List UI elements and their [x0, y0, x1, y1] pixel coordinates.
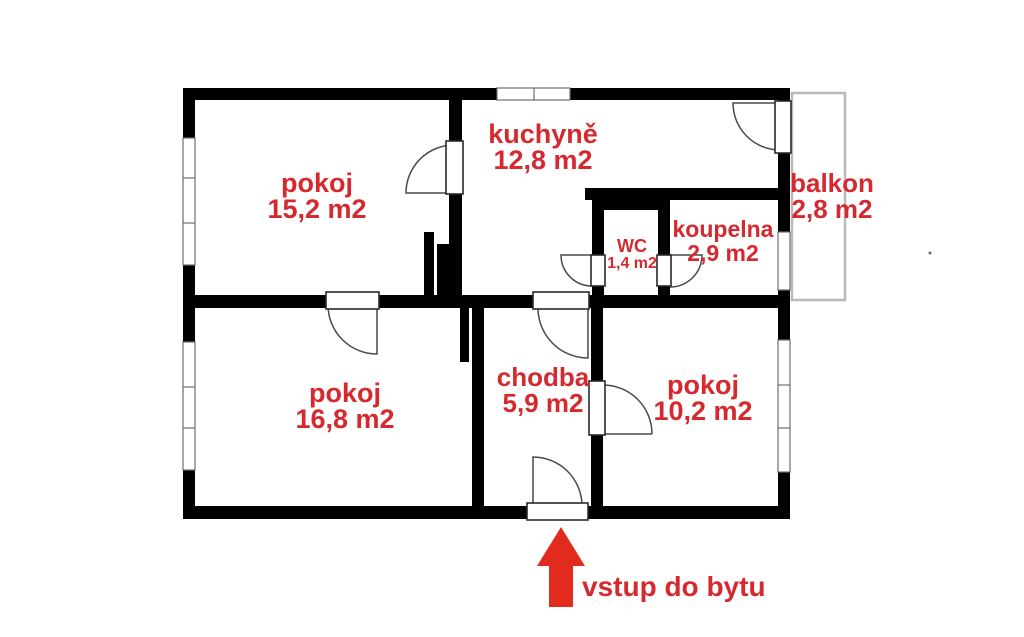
room-label-chodba: chodba 5,9 m2 [497, 364, 589, 416]
window [778, 340, 790, 472]
wall [183, 295, 326, 308]
wall [449, 100, 462, 141]
wall [472, 308, 484, 506]
door-swing-arc [603, 385, 652, 434]
door-leaf [533, 292, 589, 309]
room-label-balkon: balkon 2,8 m2 [790, 170, 874, 222]
wall [591, 308, 603, 382]
room-label-pokoj-bottom-right: pokoj 10,2 m2 [653, 372, 752, 424]
room-name: chodba [497, 364, 589, 390]
door-swing-arc [328, 305, 377, 354]
door-leaf [591, 255, 605, 286]
wall [778, 472, 790, 519]
room-area: 2,8 m2 [790, 196, 874, 222]
room-area: 15,2 m2 [267, 196, 366, 222]
wc-wall [592, 200, 604, 255]
room-name: balkon [790, 170, 874, 196]
door-leaf [326, 292, 379, 309]
wall [449, 193, 462, 295]
wall [460, 308, 469, 362]
entrance-arrow-icon [537, 527, 585, 607]
speck [929, 252, 932, 255]
wall [183, 506, 528, 519]
room-label-pokoj-bottom-left: pokoj 16,8 m2 [295, 380, 394, 432]
wall [587, 506, 790, 519]
room-area: 5,9 m2 [497, 390, 589, 416]
floor-plan-drawing [0, 0, 1024, 637]
door-leaf [657, 255, 671, 286]
room-area: 1,4 m2 [607, 255, 657, 272]
wall [570, 88, 790, 100]
interior-walls [183, 100, 790, 506]
window [183, 342, 195, 470]
door-swing-arc [533, 457, 582, 506]
floor-plan: pokoj 15,2 m2 kuchyně 12,8 m2 balkon 2,8… [0, 0, 1024, 637]
room-label-kuchyne: kuchyně 12,8 m2 [488, 121, 598, 173]
window [778, 232, 790, 290]
wall [589, 295, 790, 308]
door-leaf [446, 141, 463, 194]
wall [778, 88, 790, 101]
window [183, 138, 195, 265]
wc-wall [658, 200, 670, 255]
room-name: pokoj [295, 380, 394, 406]
room-name: WC [607, 238, 657, 255]
room-area: 12,8 m2 [488, 147, 598, 173]
shaft-wall [424, 232, 434, 295]
room-area: 10,2 m2 [653, 398, 752, 424]
wall [183, 88, 497, 100]
entrance-label: vstup do bytu [582, 571, 766, 603]
room-name: koupelna [673, 217, 774, 241]
room-label-koupelna: koupelna 2,9 m2 [673, 217, 774, 265]
shaft-wall [437, 244, 449, 295]
wall [591, 435, 603, 506]
wc-wall [592, 286, 604, 295]
wc-wall [658, 286, 670, 295]
door-leaf [589, 381, 605, 435]
room-label-pokoj-top-left: pokoj 15,2 m2 [267, 170, 366, 222]
room-name: pokoj [653, 372, 752, 398]
room-label-wc: WC 1,4 m2 [607, 238, 657, 272]
door-swing-arc [538, 308, 588, 358]
entrance-door-leaf [527, 503, 588, 520]
room-name: kuchyně [488, 121, 598, 147]
wall [603, 200, 660, 210]
wall [585, 188, 790, 200]
door-leaf [775, 101, 791, 153]
room-name: pokoj [267, 170, 366, 196]
wall [379, 295, 533, 308]
door-swing-arc [733, 103, 780, 150]
wall [183, 88, 195, 138]
room-area: 2,9 m2 [673, 241, 774, 265]
door-swing-arc [561, 255, 592, 286]
room-area: 16,8 m2 [295, 406, 394, 432]
wall [183, 470, 195, 519]
